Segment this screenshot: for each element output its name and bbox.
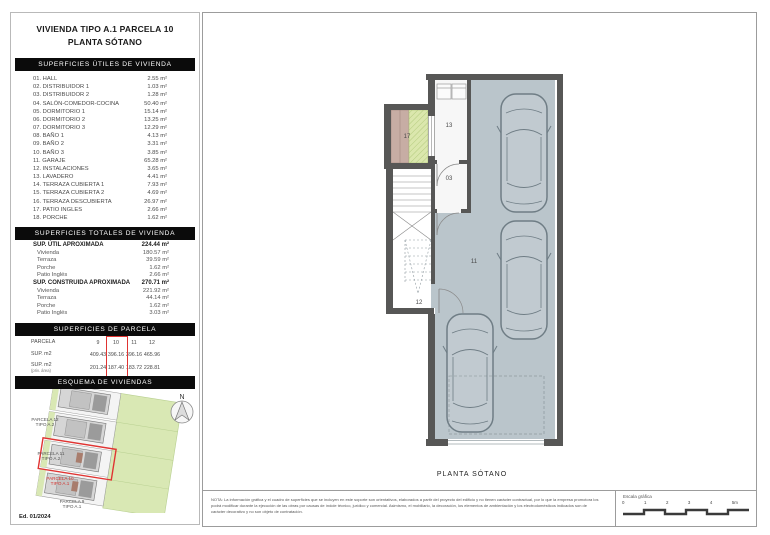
surface-row-label: 07. DORMITORIO 3 [33, 124, 85, 132]
section-header-totales: SUPERFICIES TOTALES DE VIVIENDA [15, 227, 195, 240]
surface-row-value: 4.13 m² [147, 132, 167, 140]
surface-row: 05. DORMITORIO 1 15.14 m² [11, 108, 199, 116]
section-header-esquema: ESQUEMA DE VIVIENDAS [15, 376, 195, 389]
total-item-row: Terraza 39.59 m² [11, 257, 199, 265]
surface-row-value: 4.41 m² [147, 173, 167, 181]
scale-tick: 3 [688, 500, 690, 505]
car-icon [497, 221, 551, 339]
drawing-area: 17 13 03 11 12 PLANTA SÓTANO NOTA: La in… [202, 12, 757, 527]
scale-tick: 4 [710, 500, 712, 505]
surface-row: 02. DISTRIBUIDOR 1 1.03 m² [11, 83, 199, 91]
scale-tick: 5m [732, 500, 738, 505]
surface-row-label: 17. PATIO INGLES [33, 206, 82, 214]
surface-row: 10. BAÑO 3 3.85 m² [11, 149, 199, 157]
total-item-row: Terraza 44.14 m² [11, 295, 199, 303]
scale-label: Escala gráfica [623, 494, 652, 499]
surface-row-value: 1.03 m² [147, 83, 167, 91]
total-item-row: Patio Inglés 2.66 m² [11, 272, 199, 280]
surface-row-label: 06. DORMITORIO 2 [33, 116, 85, 124]
surface-row: 14. TERRAZA CUBIERTA 1 7.93 m² [11, 181, 199, 189]
total-item-row: Vivienda 180.57 m² [11, 250, 199, 258]
footer-strip: NOTA: La información gráfica y el cuadro… [203, 490, 756, 526]
left-info-panel: VIVIENDA TIPO A.1 PARCELA 10 PLANTA SÓTA… [10, 12, 200, 525]
room-label: 13 [446, 123, 453, 129]
surface-row-value: 2.55 m² [147, 75, 167, 83]
surface-row-label: 12. INSTALACIONES [33, 165, 89, 173]
sheet-title: VIVIENDA TIPO A.1 PARCELA 10 PLANTA SÓTA… [11, 23, 199, 49]
parcela-head-row: PARCELA 9 10 11 12 [11, 337, 199, 349]
room-label: 11 [471, 259, 478, 265]
surface-row: 12. INSTALACIONES 3.65 m² [11, 165, 199, 173]
surface-row-value: 12.29 m² [144, 124, 167, 132]
surface-row-value: 3.65 m² [147, 165, 167, 173]
stairs [393, 169, 431, 308]
garage-door-threshold [448, 439, 544, 446]
surface-row-value: 13.25 m² [144, 116, 167, 124]
plan-sheet: VIVIENDA TIPO A.1 PARCELA 10 PLANTA SÓTA… [0, 0, 770, 535]
surface-row-label: 02. DISTRIBUIDOR 1 [33, 83, 89, 91]
sheet-title-line1: VIVIENDA TIPO A.1 PARCELA 10 [11, 23, 199, 36]
surface-row-value: 2.66 m² [147, 206, 167, 214]
plan-caption: PLANTA SÓTANO [379, 471, 565, 478]
total-group-header: SUP. ÚTIL APROXIMADA 224.44 m² [11, 242, 199, 250]
scale-ticks: 0 1 2 3 4 5m [622, 500, 738, 505]
surface-row: 11. GARAJE 65.28 m² [11, 157, 199, 165]
surface-row-value: 3.85 m² [147, 149, 167, 157]
surface-row: 01. HALL 2.55 m² [11, 75, 199, 83]
laundry-block [435, 80, 467, 213]
parcela-table: PARCELA 9 10 11 12 SUP. m2 409.43 396.16… [11, 337, 199, 375]
surface-row-label: 15. TERRAZA CUBIERTA 2 [33, 189, 104, 197]
surface-row-value: 3.31 m² [147, 140, 167, 148]
total-item-row: Patio Inglés 3.03 m² [11, 310, 199, 318]
surface-row: 03. DISTRIBUIDOR 2 1.28 m² [11, 91, 199, 99]
disclaimer-note: NOTA: La información gráfica y el cuadro… [211, 497, 601, 516]
surface-row: 18. PORCHE 1.62 m² [11, 214, 199, 222]
room-label: 12 [416, 300, 423, 306]
scale-bar-icon [621, 507, 753, 517]
total-group-header: SUP. CONSTRUIDA APROXIMADA 270.71 m² [11, 280, 199, 288]
surface-row-label: 03. DISTRIBUIDOR 2 [33, 91, 89, 99]
svg-text:N: N [179, 394, 184, 401]
scale-tick: 2 [666, 500, 668, 505]
surface-row: 04. SALÓN-COMEDOR-COCINA 50.40 m² [11, 100, 199, 108]
parcel-label: PARCELA 12TIPO A.2 [23, 417, 67, 428]
room-label: 03 [446, 176, 453, 182]
graphic-scale: Escala gráfica 0 1 2 3 4 5m [615, 491, 756, 526]
surface-row-value: 1.62 m² [147, 214, 167, 222]
surface-row: 17. PATIO INGLES 2.66 m² [11, 206, 199, 214]
surface-row-value: 4.69 m² [147, 189, 167, 197]
parcela-row: SUP. m2 (priv. área) 201.24 187.40 183.7… [11, 361, 199, 375]
section-header-utiles: SUPERFICIES ÚTILES DE VIVIENDA [15, 58, 195, 71]
surface-row-label: 13. LAVADERO [33, 173, 73, 181]
surface-row-label: 10. BAÑO 3 [33, 149, 64, 157]
car-icon [443, 314, 497, 432]
surface-row-label: 16. TERRAZA DESCUBIERTA [33, 198, 112, 206]
surface-row-label: 11. GARAJE [33, 157, 65, 165]
room-label: 17 [404, 134, 411, 140]
surface-row-value: 1.28 m² [147, 91, 167, 99]
surface-row-label: 18. PORCHE [33, 214, 67, 222]
edition-date: Ed. 01/2024 [19, 514, 51, 520]
total-item-row: Vivienda 221.92 m² [11, 288, 199, 296]
surface-row-label: 05. DORMITORIO 1 [33, 108, 85, 116]
surface-row-label: 09. BAÑO 2 [33, 140, 64, 148]
surface-row-value: 7.93 m² [147, 181, 167, 189]
surface-row: 15. TERRAZA CUBIERTA 2 4.69 m² [11, 189, 199, 197]
surface-row: 07. DORMITORIO 3 12.29 m² [11, 124, 199, 132]
utiles-rows: 01. HALL 2.55 m² 02. DISTRIBUIDOR 1 1.03… [11, 75, 199, 222]
parcel-label: PARCELA 9TIPO A.1 [50, 499, 94, 510]
surface-row-label: 14. TERRAZA CUBIERTA 1 [33, 181, 104, 189]
surface-row-value: 26.97 m² [144, 198, 167, 206]
north-compass-icon: N [171, 394, 193, 423]
surface-row-label: 08. BAÑO 1 [33, 132, 64, 140]
surface-row: 09. BAÑO 2 3.31 m² [11, 140, 199, 148]
parcela-row: SUP. m2 409.43 396.16 396.16 465.96 [11, 349, 199, 361]
surface-row: 06. DORMITORIO 2 13.25 m² [11, 116, 199, 124]
total-item-row: Porche 1.62 m² [11, 265, 199, 273]
surface-row-label: 01. HALL [33, 75, 57, 83]
totales-list: SUP. ÚTIL APROXIMADA 224.44 m² Vivienda … [11, 242, 199, 318]
surface-row-value: 65.28 m² [144, 157, 167, 165]
section-header-parcela: SUPERFICIES DE PARCELA [15, 323, 195, 336]
surface-row: 13. LAVADERO 4.41 m² [11, 173, 199, 181]
scale-tick: 0 [622, 500, 624, 505]
surface-row-value: 50.40 m² [144, 100, 167, 108]
surface-row: 16. TERRAZA DESCUBIERTA 26.97 m² [11, 198, 199, 206]
surface-row-label: 04. SALÓN-COMEDOR-COCINA [33, 100, 119, 108]
surface-row-value: 15.14 m² [144, 108, 167, 116]
sheet-title-line2: PLANTA SÓTANO [11, 36, 199, 49]
floor-plan: 17 13 03 11 12 [379, 58, 565, 464]
parcel-label: PARCELA 11TIPO A.2 [29, 451, 73, 462]
car-icon [497, 94, 551, 212]
scale-tick: 1 [644, 500, 646, 505]
total-item-row: Porche 1.62 m² [11, 303, 199, 311]
surface-row: 08. BAÑO 1 4.13 m² [11, 132, 199, 140]
parcel-label-highlighted: PARCELA 10TIPO A.1 [38, 476, 82, 487]
